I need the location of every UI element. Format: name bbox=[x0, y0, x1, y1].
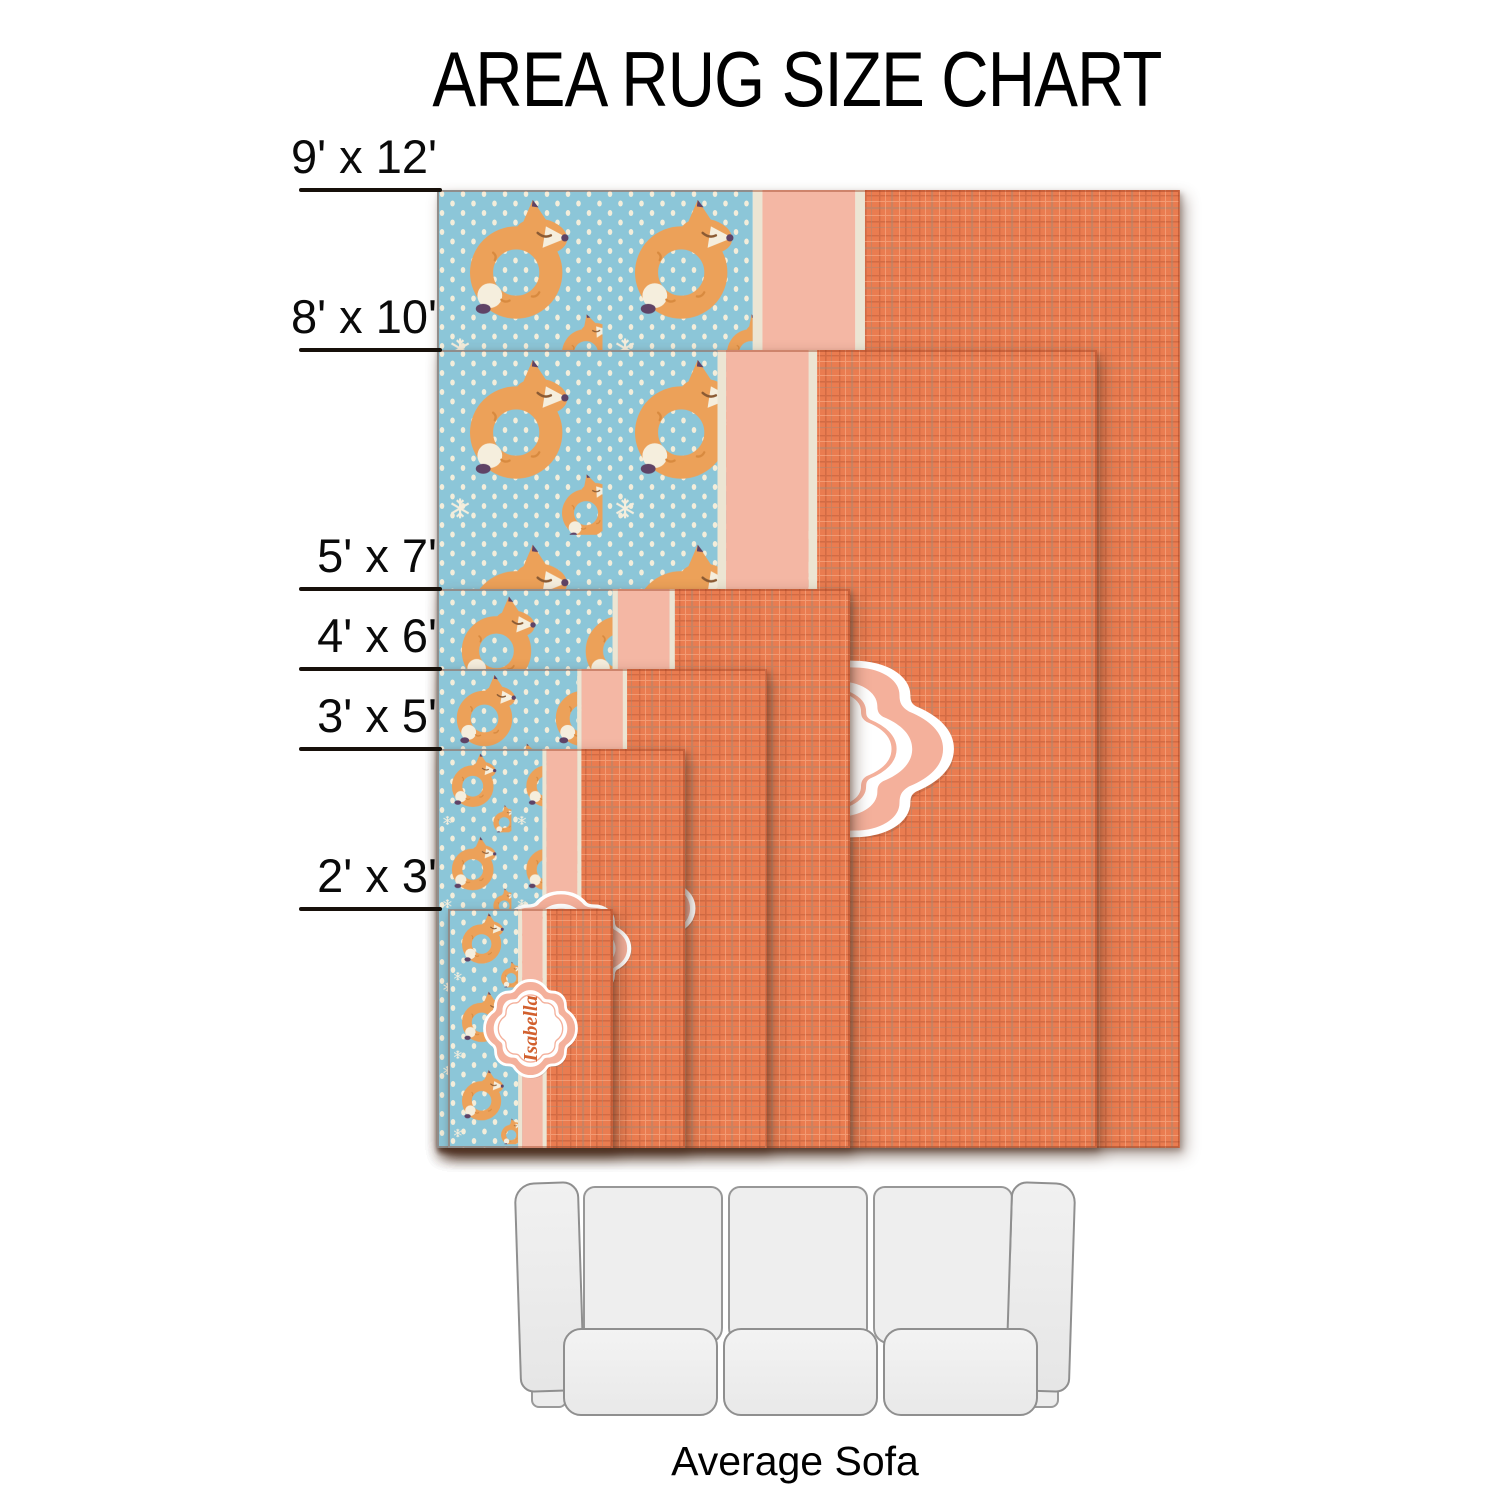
rug-size-chart-canvas: AREA RUG SIZE CHART IsabellaIsabellaIsab… bbox=[0, 0, 1500, 1500]
rug-2x3: Isabella bbox=[448, 909, 613, 1148]
size-pointer-line bbox=[299, 667, 442, 671]
sofa-label: Average Sofa bbox=[515, 1438, 1075, 1485]
sofa-illustration bbox=[515, 1180, 1075, 1422]
sofa-seat-cushion bbox=[723, 1328, 878, 1416]
size-label: 3' x 5' bbox=[317, 692, 437, 739]
sofa-seat-cushion bbox=[883, 1328, 1038, 1416]
sofa-back-cushion bbox=[583, 1186, 723, 1344]
size-pointer-line bbox=[299, 587, 442, 591]
sofa-back-cushion bbox=[728, 1186, 868, 1344]
rug-graphic: Isabella bbox=[448, 909, 613, 1148]
rug-name-badge-text: Isabella bbox=[520, 995, 542, 1062]
size-label: 5' x 7' bbox=[317, 532, 437, 579]
size-pointer-line bbox=[299, 188, 442, 192]
size-label: 4' x 6' bbox=[317, 612, 437, 659]
sofa-seat-cushion bbox=[563, 1328, 718, 1416]
size-pointer-line bbox=[299, 348, 442, 352]
page-title: AREA RUG SIZE CHART bbox=[432, 34, 1161, 125]
size-label: 9' x 12' bbox=[291, 133, 437, 180]
size-pointer-line bbox=[299, 747, 442, 751]
size-label: 8' x 10' bbox=[291, 293, 437, 340]
size-label: 2' x 3' bbox=[317, 852, 437, 899]
sofa-back-cushion bbox=[873, 1186, 1013, 1344]
size-pointer-line bbox=[299, 907, 442, 911]
